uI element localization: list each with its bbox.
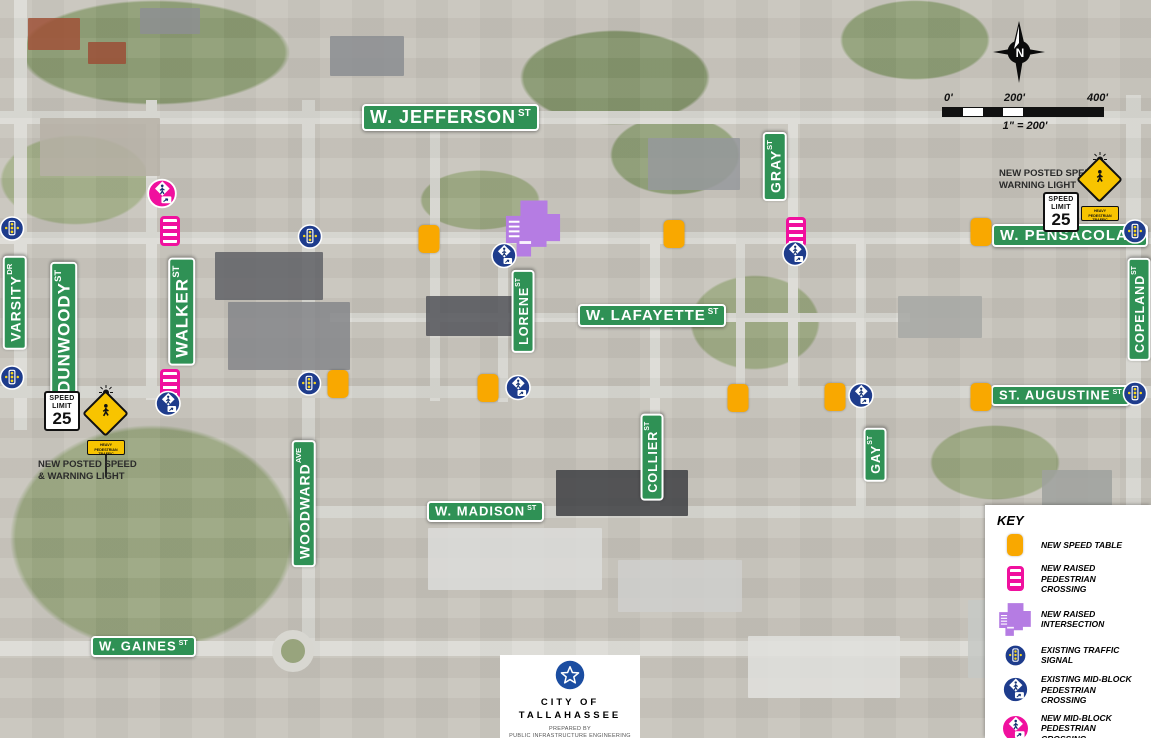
- street-suffix: ST: [179, 639, 188, 647]
- street-suffix: ST: [515, 278, 522, 287]
- city-line-2: TALLAHASSEE: [500, 710, 640, 723]
- pedestrian-plaque: HEAVY PEDESTRIAN TRAFFIC: [87, 440, 125, 455]
- street-name: GAY: [869, 445, 883, 474]
- pedestrian-icon: [1090, 167, 1110, 192]
- marker-midblock-existing: [848, 383, 874, 414]
- street-suffix: ST: [53, 270, 63, 282]
- midblock-existing-icon: [848, 383, 874, 409]
- building-block: [330, 36, 404, 76]
- street-label-woodward: WOODWARDAVE: [292, 440, 316, 567]
- building-block: [648, 138, 740, 190]
- street-suffix: ST: [171, 266, 181, 278]
- building-block: [898, 296, 982, 338]
- legend-label: EXISTING TRAFFIC SIGNAL: [1041, 645, 1143, 666]
- street-name: ST. AUGUSTINE: [999, 387, 1110, 402]
- legend-label: EXISTING MID-BLOCK PEDESTRIAN CROSSING: [1041, 674, 1143, 706]
- legend-icon-cell: [997, 534, 1033, 556]
- speed-word: SPEED: [46, 395, 78, 403]
- building-block: [140, 8, 200, 34]
- street-name: GRAY: [768, 150, 784, 193]
- pedestrian-icon: [96, 401, 116, 426]
- legend-items: NEW SPEED TABLENEW RAISED PEDESTRIAN CRO…: [997, 534, 1143, 738]
- street-suffix: ST: [518, 108, 531, 119]
- speed-table-icon: [825, 383, 846, 411]
- speed-table-icon: [971, 218, 992, 246]
- street-name: COPELAND: [1133, 275, 1147, 353]
- midblock-existing-icon: [782, 241, 808, 267]
- raised-crossing-icon: [1007, 566, 1024, 591]
- street-suffix: ST: [644, 422, 651, 431]
- building-block: [228, 302, 350, 370]
- midblock-existing-icon: [505, 375, 531, 401]
- marker-midblock-new: [147, 179, 177, 214]
- legend-label: NEW MID-BLOCK PEDESTRIAN CROSSING: [1041, 713, 1143, 738]
- street-name: VARSITY: [8, 275, 24, 342]
- speed-limit-sign: SPEED LIMIT 25: [1043, 192, 1079, 232]
- pedestrian-crossing-sign: [1076, 156, 1123, 203]
- speed-limit-sign: SPEED LIMIT 25: [44, 391, 80, 431]
- street-label-w-lafayette: W. LAFAYETTEST: [578, 304, 726, 327]
- marker-midblock-existing: [782, 241, 808, 272]
- street-name: WOODWARD: [297, 463, 313, 559]
- legend-item-midblock-new: NEW MID-BLOCK PEDESTRIAN CROSSING: [997, 713, 1143, 738]
- city-logo-icon: [555, 660, 585, 690]
- marker-raised-crossing: [160, 216, 180, 246]
- legend: KEY NEW SPEED TABLENEW RAISED PEDESTRIAN…: [985, 505, 1151, 738]
- speed-table-icon: [328, 370, 349, 398]
- org-line: PUBLIC INFRASTRUCTURE ENGINEERING: [500, 733, 640, 738]
- street-label-w-jefferson: W. JEFFERSONST: [362, 104, 539, 131]
- street-name: W. GAINES: [99, 638, 177, 653]
- traffic-signal-icon: [1123, 381, 1148, 406]
- speed-table-icon: [664, 220, 685, 248]
- marker-speed-table: [825, 383, 846, 411]
- street-name: W. JEFFERSON: [370, 107, 516, 127]
- speed-word: SPEED: [1045, 196, 1077, 204]
- street-name: DUNWOODY: [55, 282, 74, 393]
- legend-icon-cell: [997, 714, 1033, 738]
- marker-speed-table: [971, 383, 992, 411]
- street-suffix: DR: [5, 264, 14, 275]
- street-suffix: ST: [1112, 388, 1121, 396]
- legend-icon-cell: [997, 676, 1033, 703]
- marker-traffic-signal: [1123, 381, 1148, 411]
- marker-speed-table: [664, 220, 685, 248]
- street-suffix: ST: [708, 307, 719, 316]
- street-label-copeland: COPELANDST: [1128, 258, 1151, 361]
- scale-bar-graphic: [942, 107, 1104, 117]
- street-suffix: ST: [527, 504, 536, 512]
- legend-title: KEY: [997, 513, 1143, 528]
- legend-item-raised-crossing: NEW RAISED PEDESTRIAN CROSSING: [997, 563, 1143, 595]
- prepared-by: PREPARED BY PUBLIC INFRASTRUCTURE ENGINE…: [500, 726, 640, 738]
- street-label-lorene: LORENEST: [512, 270, 535, 353]
- speed-value: 25: [1045, 211, 1077, 229]
- speed-value: 25: [46, 410, 78, 428]
- legend-item-midblock-existing: EXISTING MID-BLOCK PEDESTRIAN CROSSING: [997, 674, 1143, 706]
- building-block: [40, 118, 160, 176]
- scale-tick-0: 0': [944, 92, 953, 104]
- pedestrian-plaque: HEAVY PEDESTRIAN TRAFFIC: [1081, 206, 1119, 221]
- raised-intersection-icon: [998, 602, 1032, 637]
- street-suffix: ST: [1131, 266, 1138, 275]
- traffic-signal-icon: [1004, 644, 1027, 667]
- legend-icon-cell: [997, 566, 1033, 591]
- scale-tick-200: 200': [1004, 92, 1025, 104]
- building-block: [556, 470, 688, 516]
- north-label: N: [1016, 46, 1025, 60]
- traffic-signal-icon: [0, 365, 25, 390]
- roundabout: [272, 630, 314, 672]
- street-label-w-madison: W. MADISONST: [427, 501, 544, 522]
- building-block: [428, 528, 602, 590]
- legend-icon-cell: [997, 644, 1033, 667]
- street-name: LORENE: [517, 287, 531, 345]
- legend-item-speed-table: NEW SPEED TABLE: [997, 534, 1143, 556]
- legend-label: NEW RAISED PEDESTRIAN CROSSING: [1041, 563, 1143, 595]
- marker-midblock-existing: [491, 243, 517, 274]
- street-suffix: ST: [867, 436, 874, 445]
- posted-speed-note-left: NEW POSTED SPEED & WARNING LIGHT: [38, 459, 137, 483]
- street-name: WALKER: [173, 278, 192, 358]
- street-suffix: AVE: [294, 448, 303, 463]
- marker-traffic-signal: [298, 224, 323, 254]
- speed-warning-group-left: SPEED LIMIT 25 HEAVY PEDESTRIAN TRAFFIC …: [38, 383, 188, 543]
- street-label-gray: GRAYST: [763, 132, 787, 201]
- building-block: [618, 560, 742, 612]
- midblock-new-icon: [147, 179, 177, 209]
- marker-speed-table: [328, 370, 349, 398]
- marker-speed-table: [971, 218, 992, 246]
- building-block: [748, 636, 900, 698]
- street-label-dunwoody: DUNWOODYST: [50, 262, 77, 401]
- marker-speed-table: [419, 225, 440, 253]
- traffic-plan-map: W. JEFFERSONSTW. PENSACOLASTW. LAFAYETTE…: [0, 0, 1151, 738]
- building-block: [426, 296, 518, 336]
- legend-item-traffic-signal: EXISTING TRAFFIC SIGNAL: [997, 644, 1143, 667]
- street-label-varsity: VARSITYDR: [3, 256, 27, 350]
- scale-ratio: 1" = 200': [942, 120, 1108, 132]
- north-arrow: N: [992, 20, 1048, 86]
- legend-label: NEW RAISED INTERSECTION: [1041, 609, 1143, 630]
- note-line: & WARNING LIGHT: [38, 471, 137, 483]
- traffic-signal-icon: [0, 216, 25, 241]
- legend-item-raised-intersection: NEW RAISED INTERSECTION: [997, 602, 1143, 637]
- city-line-1: CITY OF: [500, 697, 640, 710]
- street-label-collier: COLLIERST: [641, 414, 664, 501]
- marker-speed-table: [728, 384, 749, 412]
- building-block: [1042, 470, 1112, 506]
- marker-traffic-signal: [0, 365, 25, 395]
- speed-table-icon: [419, 225, 440, 253]
- street-name: W. MADISON: [435, 503, 525, 518]
- legend-icon-cell: [997, 602, 1033, 637]
- street-label-st-augustine: ST. AUGUSTINEST: [991, 385, 1130, 406]
- scale-tick-400: 400': [1087, 92, 1108, 104]
- pedestrian-crossing-sign: [82, 390, 129, 437]
- speed-table-icon: [728, 384, 749, 412]
- marker-midblock-existing: [505, 375, 531, 406]
- street-suffix: ST: [765, 140, 774, 150]
- speed-table-icon: [971, 383, 992, 411]
- marker-traffic-signal: [0, 216, 25, 246]
- note-line: NEW POSTED SPEED: [38, 459, 137, 471]
- street-label-w-gaines: W. GAINESST: [91, 636, 196, 657]
- title-block: CITY OF TALLAHASSEE PREPARED BY PUBLIC I…: [500, 655, 640, 738]
- midblock-existing-icon: [1002, 676, 1029, 703]
- building-block: [28, 18, 80, 50]
- traffic-signal-icon: [298, 224, 323, 249]
- midblock-existing-icon: [491, 243, 517, 269]
- midblock-new-icon: [1001, 714, 1030, 738]
- marker-traffic-signal: [297, 371, 322, 401]
- street-label-walker: WALKERST: [168, 258, 195, 366]
- traffic-signal-icon: [297, 371, 322, 396]
- city-name: CITY OF TALLAHASSEE: [500, 697, 640, 723]
- building-block: [215, 252, 323, 300]
- speed-table-icon: [1007, 534, 1023, 556]
- street-label-gay: GAYST: [864, 428, 887, 482]
- speed-table-icon: [478, 374, 499, 402]
- speed-warning-group-right: NEW POSTED SPEED & WARNING LIGHT SPEED L…: [995, 150, 1150, 240]
- legend-label: NEW SPEED TABLE: [1041, 540, 1122, 551]
- street-name: W. LAFAYETTE: [586, 307, 706, 324]
- prepared-line: PREPARED BY: [500, 726, 640, 734]
- raised-crossing-icon: [160, 216, 180, 246]
- street-name: COLLIER: [646, 431, 660, 493]
- building-block: [88, 42, 126, 64]
- marker-speed-table: [478, 374, 499, 402]
